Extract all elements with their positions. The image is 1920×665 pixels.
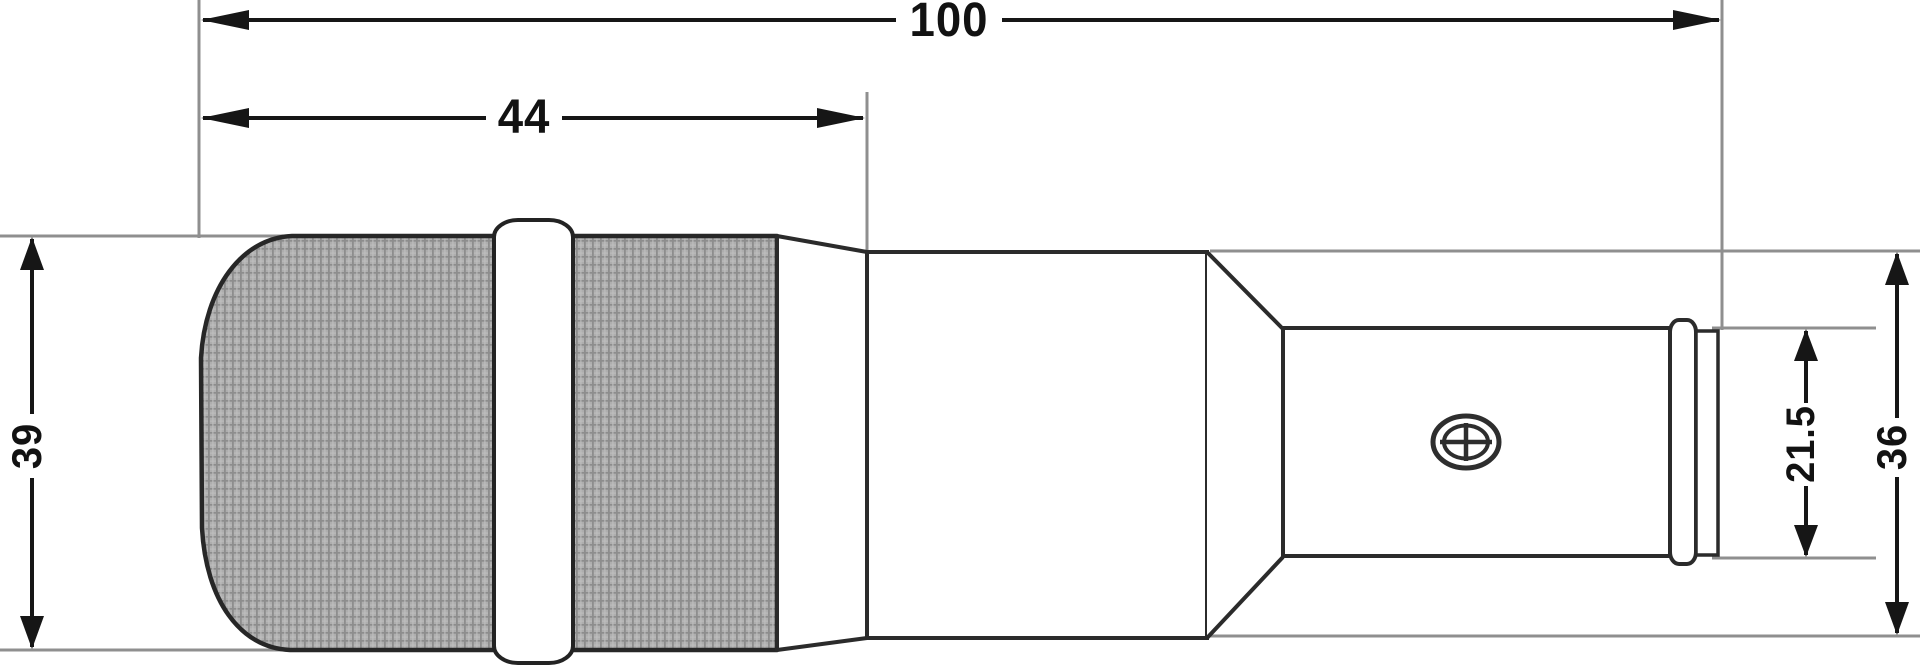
arrow-down — [20, 616, 44, 649]
dim-label-body-diameter: 36 — [1871, 424, 1913, 470]
grille-ring — [494, 220, 573, 663]
screw-head-icon — [1433, 416, 1499, 468]
grille-body-taper — [777, 236, 867, 650]
arrow-down — [1885, 602, 1909, 635]
arrow-left — [201, 10, 249, 30]
arrow-left — [201, 108, 249, 128]
drawing-canvas — [0, 0, 1920, 665]
dim-label-connector-diameter: 21.5 — [1781, 405, 1821, 483]
arrow-up — [20, 237, 44, 270]
arrow-down — [1794, 525, 1818, 557]
arrow-up — [1794, 329, 1818, 361]
chamfer-face — [1207, 252, 1283, 638]
drawing-page: 100 44 39 21.5 36 — [0, 0, 1920, 665]
microphone-drawing — [201, 220, 1718, 663]
arrow-up — [1885, 252, 1909, 285]
dim-label-total-length: 100 — [910, 0, 989, 45]
end-cap — [1696, 331, 1718, 555]
arrow-right — [1673, 10, 1721, 30]
dim-label-front-length: 44 — [498, 94, 551, 142]
dim-label-front-diameter: 39 — [6, 423, 48, 469]
arrow-right — [817, 108, 865, 128]
grille — [201, 236, 777, 650]
body — [867, 252, 1207, 638]
rear-ring — [1670, 320, 1696, 564]
